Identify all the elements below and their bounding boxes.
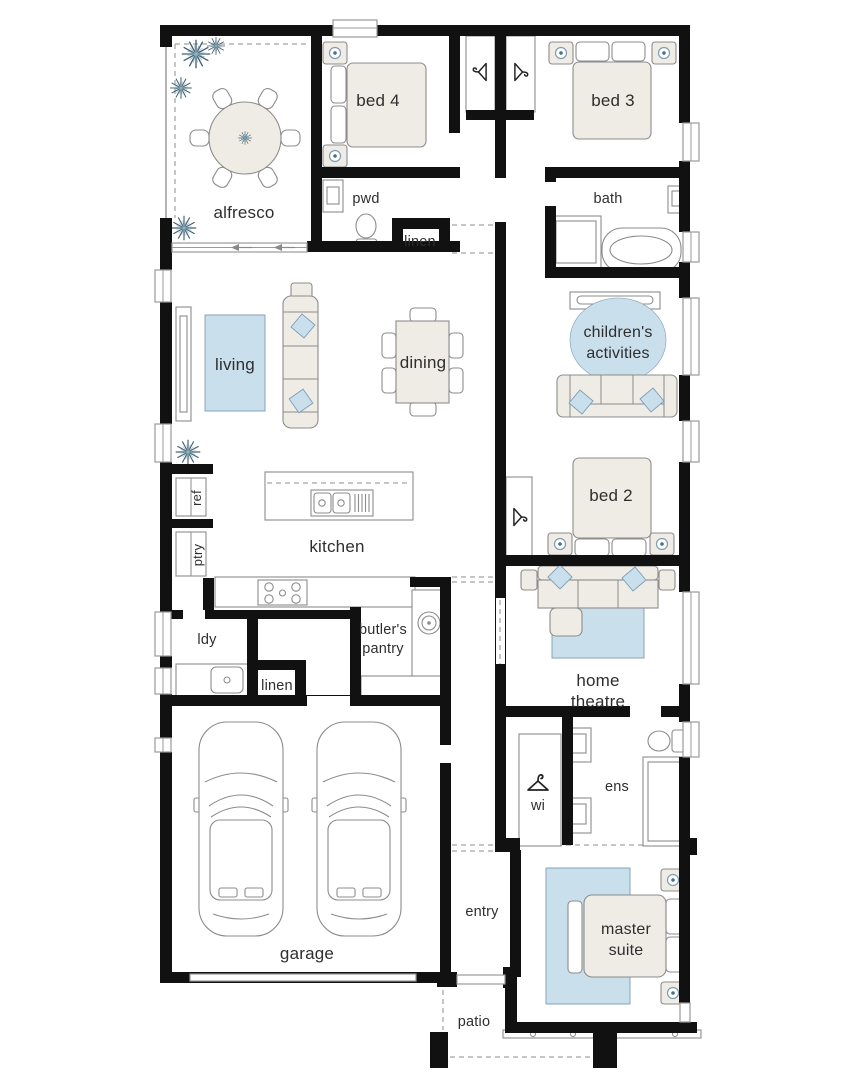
room-label-bed3: bed 3 [591,91,635,110]
front-door [457,975,505,984]
room-label-entry: entry [465,904,499,920]
room-label-garage: garage [280,944,334,963]
room-label-linen-upper: linen [404,234,436,250]
floor-plan: alfresco bed 4 bed 3 pwd linen bath livi… [0,0,855,1088]
room-label-ens: ens [605,779,629,795]
bed2-furniture [506,458,674,557]
room-label-alfresco: alfresco [213,203,274,222]
room-label-bed4: bed 4 [356,91,400,110]
room-label-master-1: master [601,921,652,938]
room-label-childrens-1: children's [583,324,652,341]
room-label-wi: wi [530,798,545,814]
room-label-master-2: suite [609,942,644,959]
room-label-childrens-2: activities [586,345,649,362]
theatre-furniture [521,565,675,658]
garage-door [190,974,416,981]
room-label-kitchen: kitchen [309,537,364,556]
room-label-linen-lower: linen [261,678,293,694]
alfresco-table-setting [190,86,300,189]
room-label-butlers-2: pantry [362,641,404,657]
room-label-dining: dining [400,353,447,372]
plant-icon [170,77,192,99]
room-label-pwd: pwd [352,191,379,207]
room-label-patio: patio [458,1014,490,1030]
room-label-theatre-1: home [576,671,619,690]
room-label-bath: bath [593,191,622,207]
plant-icon [176,440,201,465]
ldy-fixtures [176,664,248,696]
room-label-living: living [215,355,255,374]
room-label-butlers-1: butler's [359,622,407,638]
car [194,722,288,936]
room-label-bed2: bed 2 [589,486,633,505]
room-label-ldy: ldy [197,632,217,648]
sliding-door [172,243,307,252]
plant-icon [172,216,197,241]
wi-ens-fixtures [519,728,689,846]
furniture [170,36,689,1004]
room-label-theatre-2: theatre [571,692,625,711]
car [312,722,406,936]
plant-icon [207,37,225,55]
room-label-ptry: ptry [190,543,205,566]
room-label-ref: ref [189,490,204,506]
floor-plan-canvas: alfresco bed 4 bed 3 pwd linen bath livi… [0,0,855,1088]
